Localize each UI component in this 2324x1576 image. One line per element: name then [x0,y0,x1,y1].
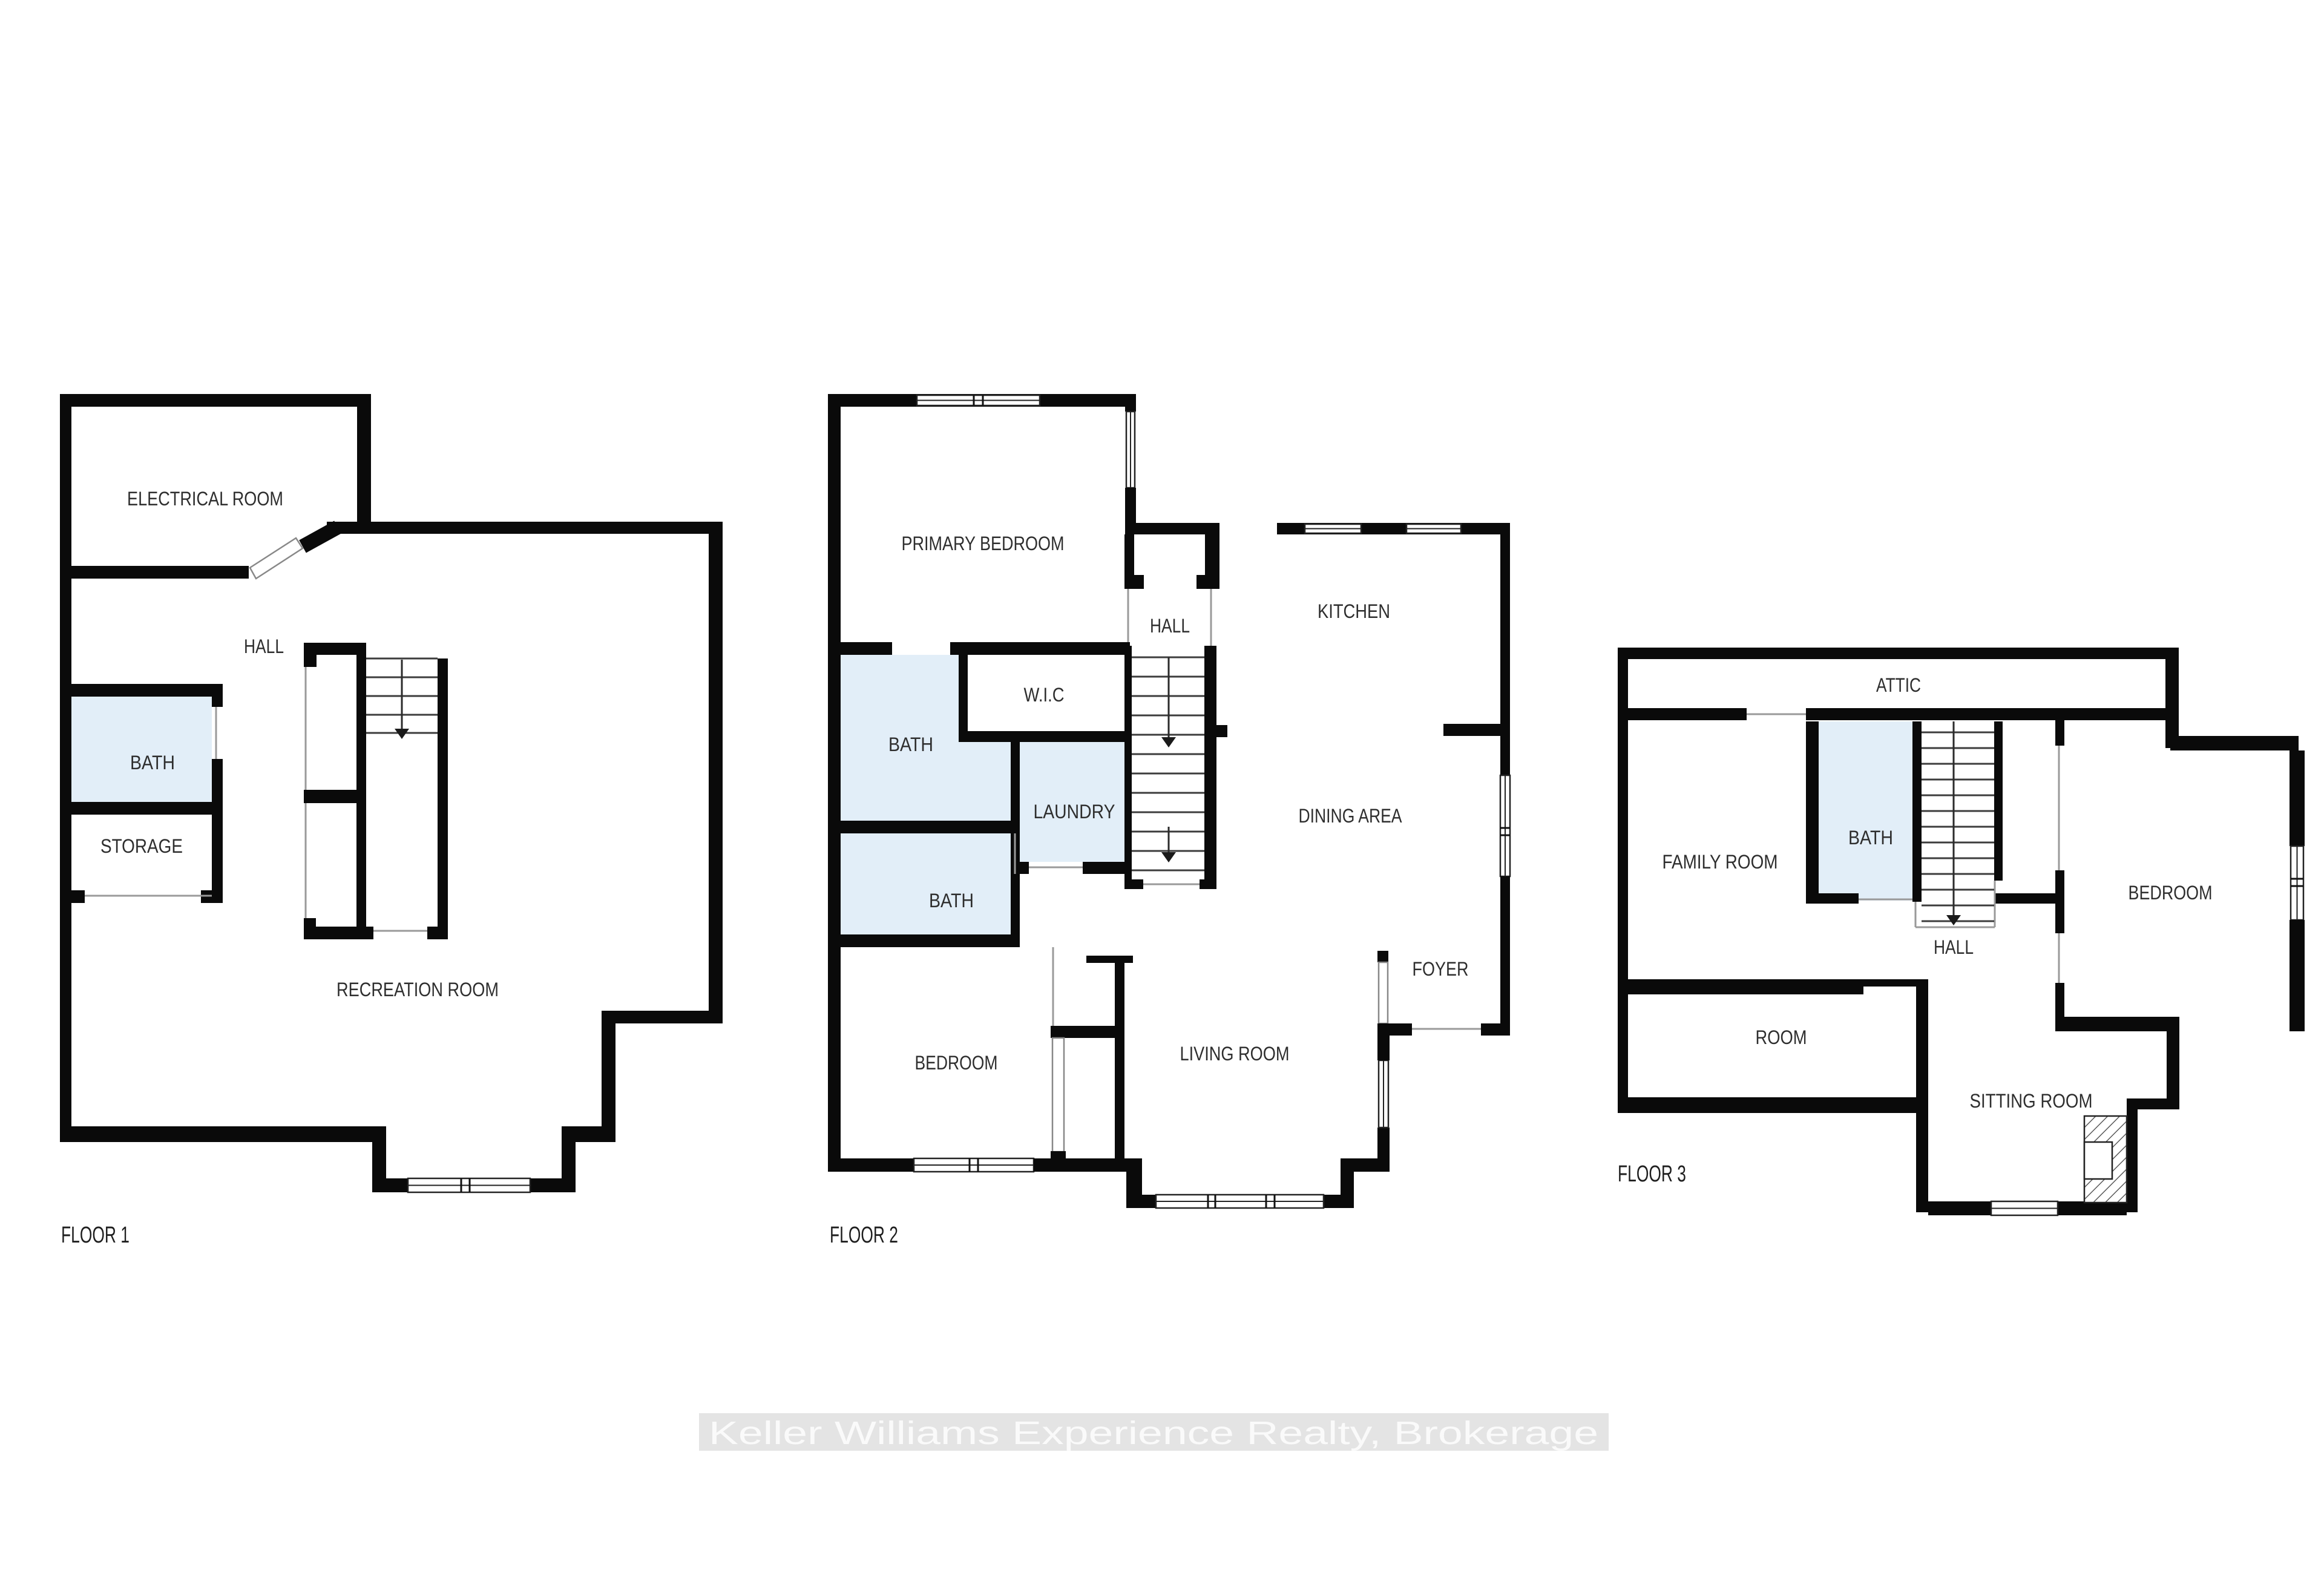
svg-text:BATH: BATH [929,890,974,911]
svg-text:STORAGE: STORAGE [100,835,183,857]
svg-text:HALL: HALL [1934,936,1974,958]
svg-text:DINING AREA: DINING AREA [1299,805,1403,827]
svg-text:LIVING ROOM: LIVING ROOM [1180,1043,1290,1065]
svg-text:FOYER: FOYER [1413,958,1469,980]
svg-text:BEDROOM: BEDROOM [2129,882,2213,904]
svg-text:BATH: BATH [130,752,175,773]
svg-text:RECREATION ROOM: RECREATION ROOM [336,979,499,1000]
svg-text:FAMILY ROOM: FAMILY ROOM [1663,851,1778,873]
svg-text:BATH: BATH [1848,827,1893,849]
svg-text:Keller Williams Experience Rea: Keller Williams Experience Realty, Broke… [709,1415,1598,1451]
svg-text:PRIMARY BEDROOM: PRIMARY BEDROOM [902,533,1065,554]
svg-text:ELECTRICAL ROOM: ELECTRICAL ROOM [127,488,283,510]
svg-text:ROOM: ROOM [1756,1026,1807,1048]
svg-text:HALL: HALL [1150,615,1190,637]
svg-text:FLOOR 3: FLOOR 3 [1618,1161,1686,1187]
svg-text:ATTIC: ATTIC [1876,674,1921,696]
svg-text:SITTING ROOM: SITTING ROOM [1970,1090,2093,1112]
svg-text:BATH: BATH [888,734,933,755]
svg-text:W.I.C: W.I.C [1024,684,1065,706]
svg-text:KITCHEN: KITCHEN [1318,600,1390,622]
svg-text:BEDROOM: BEDROOM [915,1052,998,1074]
svg-text:HALL: HALL [244,635,284,657]
svg-text:FLOOR 1: FLOOR 1 [61,1223,130,1248]
svg-text:LAUNDRY: LAUNDRY [1034,801,1115,822]
svg-text:FLOOR 2: FLOOR 2 [830,1223,898,1248]
